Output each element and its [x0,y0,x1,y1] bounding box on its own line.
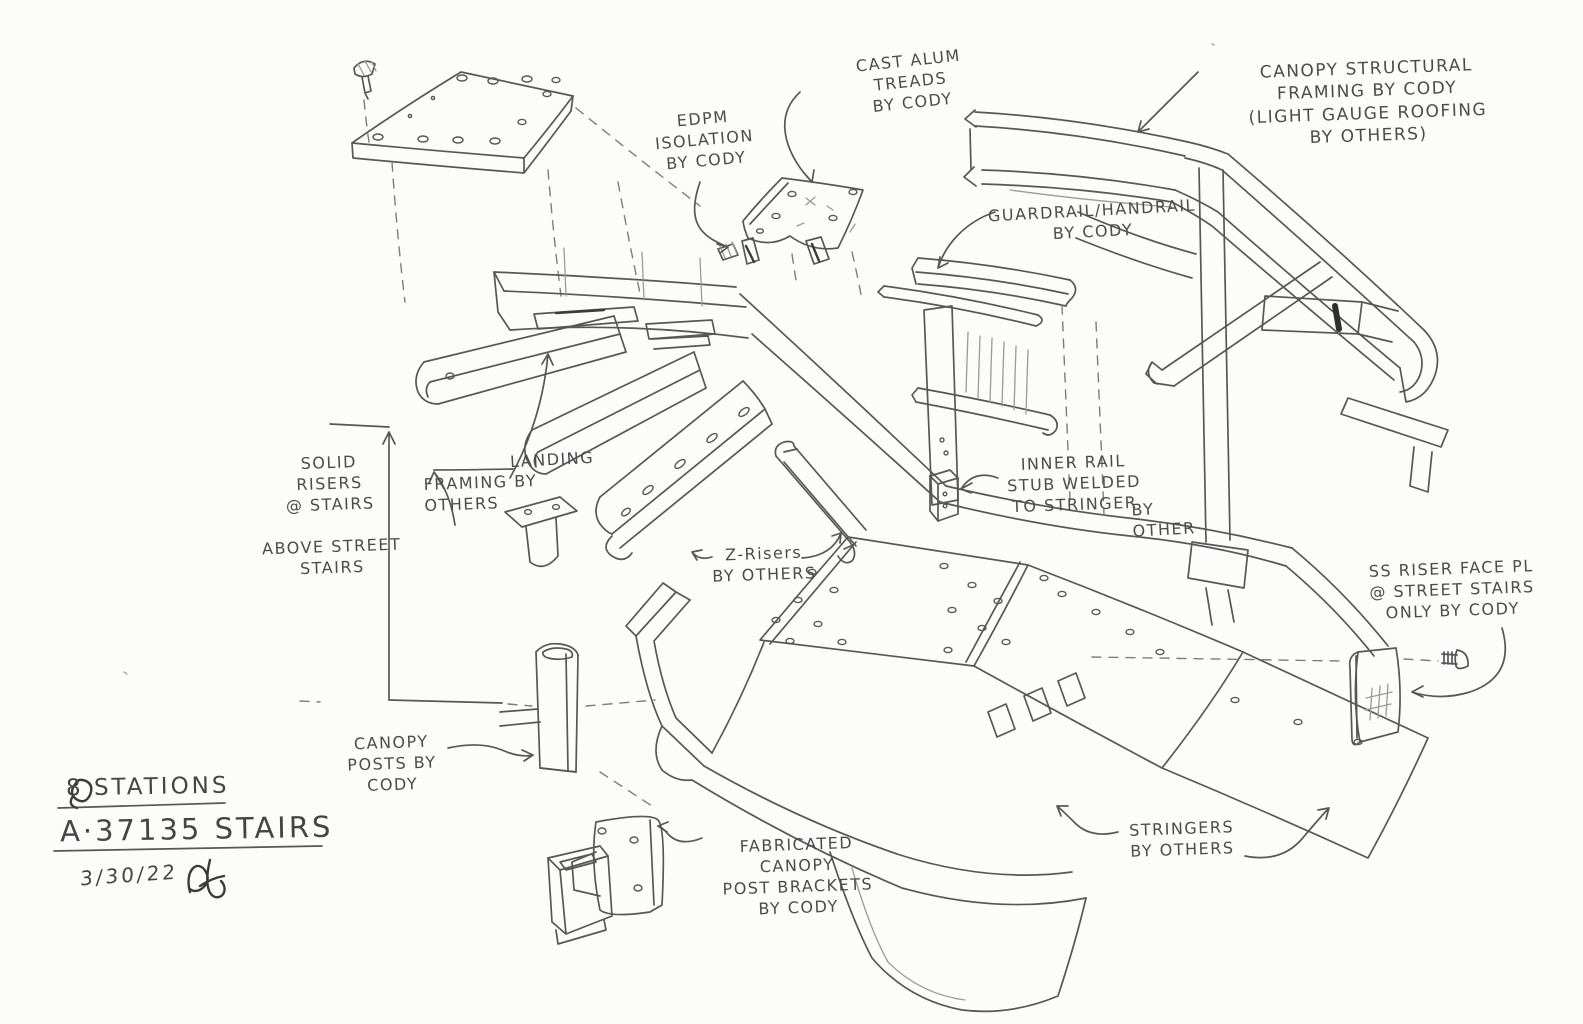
landing-header-beam [494,248,748,338]
title-stations: 8 STATIONS [66,771,230,804]
canopy-main-beam [964,110,1188,202]
annotation-landing: LANDING [510,447,595,472]
annotation-canopy-posts: CANOPY POSTS BY CODY [331,730,453,797]
inner-rail-stub-block [930,470,958,521]
canopy-purlin-diagonal [1146,262,1332,386]
annotation-solid-risers: SOLID RISERS @ STAIRS [276,450,383,517]
canopy-under-box [1262,296,1398,342]
fabricated-bracket [548,816,663,944]
signature [189,860,225,897]
landing-plate [352,72,573,173]
annotation-ss-riser-face: SS RISER FACE PL @ STREET STAIRS ONLY BY… [1331,554,1573,626]
landing-bracket-bar-2 [646,320,715,349]
screw-icon [354,61,376,99]
annotation-stringers-by-others: STRINGERS BY OTHERS [1111,816,1252,863]
title-project-number: A·37135 STAIRS [60,808,334,851]
sketch-page: CAST ALUM TREADS BY CODY EDPM ISOLATION … [0,0,1583,1024]
annotation-z-risers: Z-Risers BY OTHERS [707,541,820,587]
ss-projection-dash [1092,657,1438,661]
landing-bracket-bar-1 [534,307,638,329]
stair-assembly [626,537,1428,1011]
annotation-inner-rail-stub-by-other: BY OTHER [1131,496,1196,541]
canopy-purlin-t [1341,398,1448,492]
cast-alum-tread [718,178,863,300]
z-riser-channel-long [596,381,772,559]
ss-riser-plate [1350,648,1400,745]
annotation-canopy-structural-framing: CANOPY STRUCTURAL FRAMING BY CODY (LIGHT… [1184,52,1552,154]
annotation-framing-by-others: FRAMING BY OTHERS [423,470,538,516]
bolt-icon [1442,650,1468,669]
canopy-post-left [500,644,655,806]
annotation-fabricated-brackets: FABRICATED CANOPY POST BRACKETS BY CODY [699,831,897,922]
annotation-above-street-stairs: ABOVE STREET STAIRS [257,533,406,580]
